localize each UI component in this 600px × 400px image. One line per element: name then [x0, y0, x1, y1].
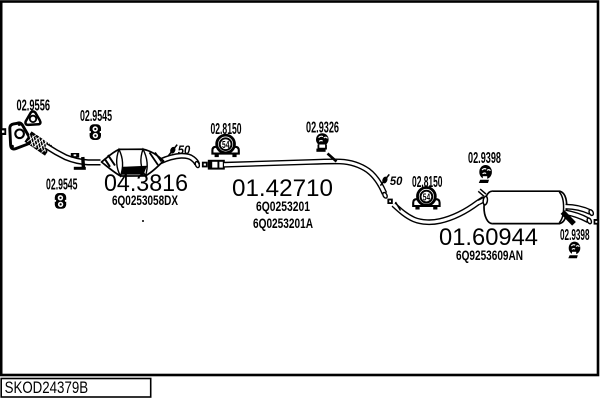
svg-text:6Q0253201: 6Q0253201 [256, 198, 310, 214]
svg-text:SKOD24379B: SKOD24379B [5, 379, 89, 397]
svg-text:02.9545: 02.9545 [46, 177, 78, 194]
svg-text:6Q0253058DX: 6Q0253058DX [112, 192, 178, 208]
svg-text:50: 50 [390, 174, 403, 188]
svg-text:02.9545: 02.9545 [80, 108, 112, 125]
svg-text:02.9398: 02.9398 [560, 227, 590, 244]
svg-text:54: 54 [222, 139, 229, 151]
svg-text:50: 50 [178, 143, 191, 157]
svg-text:6Q0253201A: 6Q0253201A [253, 215, 313, 231]
svg-text:02.9398: 02.9398 [468, 150, 501, 167]
svg-text:54: 54 [423, 192, 430, 204]
svg-text:6Q9253609AN: 6Q9253609AN [456, 247, 523, 263]
